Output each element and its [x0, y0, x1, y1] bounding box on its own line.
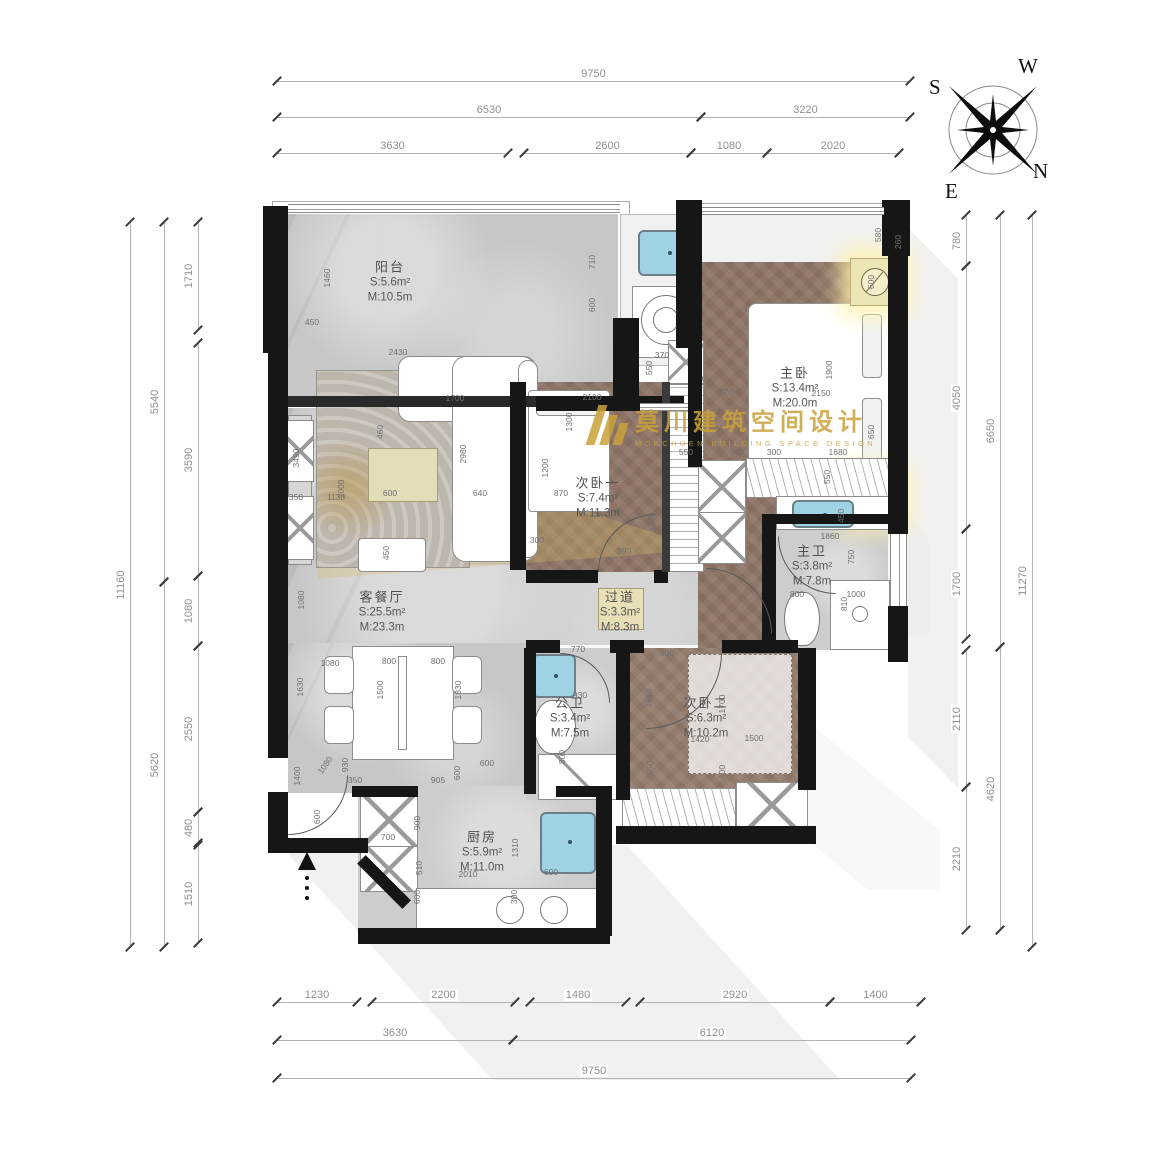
interior-dimension: 300	[767, 447, 781, 457]
interior-dimension: 905	[431, 775, 445, 785]
wall	[888, 252, 908, 534]
interior-dimension: 2430	[389, 347, 408, 357]
interior-dimension: 800	[790, 589, 804, 599]
balcony-window	[288, 204, 620, 213]
dimension-line	[277, 81, 910, 82]
interior-dimension: 900	[660, 648, 674, 658]
wall	[526, 570, 598, 583]
watermark-cn-text: 莫川建筑空间设计	[635, 402, 876, 437]
room-area-m: M:10.5m	[368, 290, 413, 304]
dimension-value: 6530	[475, 104, 503, 116]
dimension-line	[966, 266, 967, 529]
interior-dimension: 1860	[821, 531, 840, 541]
interior-dimension: 1400	[647, 513, 657, 532]
master-closet-box	[698, 512, 746, 564]
wall	[616, 826, 816, 844]
room-label-5: 客餐厅 S:25.5m² M:23.3m	[359, 590, 406, 635]
wall	[676, 200, 702, 348]
dimension-line	[1000, 647, 1001, 930]
room-name: 阳台	[368, 260, 413, 276]
interior-dimension: 1310	[510, 839, 520, 858]
wall	[762, 514, 892, 524]
interior-dimension: 400	[717, 765, 727, 779]
dimension-value: 1510	[183, 880, 195, 908]
studio-logo-icon	[592, 405, 625, 445]
building-shadow-right	[908, 228, 958, 788]
dimension-value: 5620	[149, 750, 161, 778]
interior-dimension: 580	[873, 228, 883, 242]
wall	[722, 640, 798, 653]
compass-label-w: W	[1018, 54, 1038, 78]
dimension-value: 2210	[951, 844, 963, 872]
wall	[268, 350, 288, 662]
interior-dimension: 600	[544, 867, 558, 877]
studio-watermark: 莫川建筑空间设计 MOKCHUEN BUILDING SPACE DESIGN	[592, 402, 876, 448]
arrow-head-icon	[298, 852, 316, 870]
interior-dimension: 930	[573, 690, 587, 700]
interior-dimension: 350	[289, 492, 303, 502]
room-area-m: M:7.5m	[550, 726, 590, 740]
room-label-9: 厨房 S:5.9m² M:11.0m	[460, 830, 504, 875]
dimension-value: 2920	[721, 989, 749, 1001]
dimension-line	[767, 153, 899, 154]
interior-dimension: 1500	[745, 733, 764, 743]
wall	[613, 318, 639, 410]
interior-dimension: 1660	[644, 689, 654, 708]
dimension-line	[701, 117, 910, 118]
watermark-en-text: MOKCHUEN BUILDING SPACE DESIGN	[635, 439, 876, 448]
dimension-line	[1032, 215, 1033, 947]
room-area-m: M:7.8m	[792, 574, 832, 588]
interior-dimension: 300	[509, 890, 519, 904]
master-closet-box	[698, 460, 746, 514]
wall	[358, 928, 610, 944]
interior-dimension: 460	[375, 425, 385, 439]
dimension-value: 6120	[698, 1027, 726, 1039]
interior-dimension: 1630	[295, 678, 305, 697]
bed2-wardrobe	[622, 788, 736, 828]
interior-dimension: 2150	[812, 388, 831, 398]
wall	[888, 606, 908, 662]
dimension-value: 480	[183, 816, 195, 838]
interior-dimension: 1680	[829, 447, 848, 457]
dimension-value: 3630	[378, 140, 406, 152]
dimension-value: 2600	[593, 140, 621, 152]
floor-plan-canvas: 阳台 S:5.6m² M:10.5m主卧 S:13.4m² M:20.0m次卧一…	[0, 0, 1150, 1154]
dimension-line	[277, 1002, 357, 1003]
interior-dimension: 1500	[375, 681, 385, 700]
wall	[263, 206, 288, 353]
dimension-value: 1710	[183, 262, 195, 290]
interior-dimension: 700	[381, 832, 395, 842]
interior-dimension: 1080	[296, 591, 306, 610]
interior-dimension: 1420	[691, 734, 710, 744]
dimension-value: 4050	[951, 383, 963, 411]
interior-dimension: 550	[644, 361, 654, 375]
interior-dimension: 260	[893, 235, 903, 249]
room-name: 客餐厅	[359, 590, 406, 606]
dimension-value: 1480	[564, 989, 592, 1001]
wall	[798, 648, 816, 790]
dimension-line	[966, 787, 967, 930]
room-name: 厨房	[460, 830, 504, 846]
room-area-m: M:8.3m	[600, 620, 640, 634]
interior-dimension: 450	[381, 546, 391, 560]
dimension-line	[277, 117, 701, 118]
interior-dimension: 600	[587, 298, 597, 312]
interior-dimension: 800	[431, 656, 445, 666]
dimension-value: 780	[951, 229, 963, 251]
room-area-s: S:6.3m²	[683, 712, 728, 726]
room-area-m: M:23.3m	[359, 620, 406, 634]
interior-dimension: 450	[305, 317, 319, 327]
dimension-value: 1080	[715, 140, 743, 152]
master-bath-window	[890, 534, 907, 606]
interior-dimension: 350	[348, 775, 362, 785]
room-area-m: M:11.3m	[575, 506, 620, 520]
dimension-line	[198, 576, 199, 646]
wall	[596, 786, 612, 936]
interior-dimension: 2980	[458, 445, 468, 464]
room-name: 次卧一	[575, 476, 620, 492]
shower-head-icon	[852, 606, 868, 622]
room-label-6: 过道 S:3.3m² M:8.3m	[600, 590, 640, 635]
interior-dimension: 3490	[291, 449, 301, 468]
interior-dimension: 710	[587, 255, 597, 269]
dimension-line	[277, 1078, 911, 1079]
room-label-1: 阳台 S:5.6m² M:10.5m	[368, 260, 413, 305]
wall-balcony-sill	[288, 396, 540, 407]
dimension-line	[966, 529, 967, 639]
interior-dimension: 1300	[564, 413, 574, 432]
interior-dimension: 1080	[321, 658, 340, 668]
interior-dimension: 550	[822, 470, 832, 484]
wall	[510, 382, 526, 570]
dimension-line	[277, 1040, 513, 1041]
dimension-line	[198, 646, 199, 812]
dimension-line	[513, 1040, 911, 1041]
interior-dimension: 1700	[446, 393, 465, 403]
interior-dimension: 1830	[453, 681, 463, 700]
interior-dimension: 1700	[717, 695, 727, 714]
interior-dimension: 1000	[847, 589, 866, 599]
room-name: 主卫	[792, 544, 832, 560]
room-area-s: S:3.4m²	[550, 712, 590, 726]
dimension-line	[372, 1002, 515, 1003]
interior-dimension: 370	[655, 350, 669, 360]
interior-dimension: 810	[839, 597, 849, 611]
dimension-value: 3590	[183, 445, 195, 473]
interior-dimension: 1900	[824, 361, 834, 380]
interior-dimension: 600	[866, 275, 876, 289]
room-name: 过道	[600, 590, 640, 606]
side-table	[358, 538, 426, 572]
interior-dimension: 600	[480, 758, 494, 768]
interior-dimension: 1460	[322, 269, 332, 288]
interior-dimension: 600	[383, 488, 397, 498]
stove-burner-icon	[540, 896, 568, 924]
interior-dimension: 300	[530, 535, 544, 545]
interior-dimension: 450	[836, 509, 846, 523]
dimension-line	[164, 222, 165, 582]
interior-dimension: 1200	[540, 459, 550, 478]
master-bed-pillow	[862, 314, 882, 378]
coffee-table	[368, 448, 438, 502]
room-label-4: 主卫 S:3.8m² M:7.8m	[792, 544, 832, 589]
interior-dimension: 890	[617, 546, 631, 556]
dimension-value: 1080	[183, 597, 195, 625]
room-area-s: S:3.3m²	[600, 606, 640, 620]
interior-dimension: 600	[412, 890, 422, 904]
dimension-value: 5540	[149, 388, 161, 416]
interior-dimension: 510	[414, 861, 424, 875]
dimension-line	[640, 1002, 830, 1003]
dimension-line	[1000, 215, 1001, 647]
wall	[524, 648, 536, 794]
interior-dimension: 550	[679, 447, 693, 457]
master-wardrobe	[746, 458, 890, 498]
dimension-value: 1230	[303, 989, 331, 1001]
room-area-s: S:5.6m²	[368, 276, 413, 290]
master-window	[702, 207, 884, 215]
dimension-value: 2020	[819, 140, 847, 152]
wall	[268, 838, 368, 853]
dimension-line	[277, 153, 508, 154]
interior-dimension: 640	[473, 488, 487, 498]
interior-dimension: 770	[719, 387, 733, 397]
dimension-value: 2200	[429, 989, 457, 1001]
dining-chair	[452, 706, 482, 744]
dining-table-runner	[398, 656, 407, 750]
dimension-value: 9750	[579, 68, 607, 80]
dimension-line	[198, 812, 199, 843]
room-area-s: S:5.9m²	[460, 846, 504, 860]
interior-dimension: 600	[312, 810, 322, 824]
wall	[616, 648, 630, 800]
interior-dimension: 930	[340, 758, 350, 772]
dimension-line	[830, 1002, 921, 1003]
interior-dimension: 800	[382, 656, 396, 666]
interior-dimension: 1400	[292, 767, 302, 786]
compass-label-s: S	[929, 75, 941, 99]
dining-chair	[324, 706, 354, 744]
dimension-line	[966, 215, 967, 266]
dimension-value: 1700	[951, 570, 963, 598]
dimension-value: 9750	[580, 1065, 608, 1077]
dimension-line	[164, 582, 165, 947]
dimension-value: 3220	[791, 104, 819, 116]
interior-dimension: 600	[452, 766, 462, 780]
interior-dimension: 940	[730, 447, 744, 457]
master-window-strip	[700, 214, 888, 264]
interior-dimension: 800	[557, 750, 567, 764]
room-label-3: 次卧一 S:7.4m² M:11.3m	[575, 476, 620, 521]
interior-dimension: 1000	[336, 480, 346, 499]
dimension-line	[524, 153, 691, 154]
room-area-s: S:7.4m²	[575, 492, 620, 506]
interior-dimension: 2100	[583, 392, 602, 402]
dimension-value: 11270	[1017, 564, 1029, 598]
wall	[268, 792, 288, 844]
compass-label-n: N	[1033, 159, 1048, 183]
room-area-s: S:25.5m²	[359, 606, 406, 620]
interior-dimension: 550	[645, 761, 655, 775]
wall	[352, 786, 418, 797]
compass-rose: W S E N	[915, 48, 1065, 208]
dimension-value: 6650	[985, 417, 997, 445]
interior-dimension: 750	[846, 550, 856, 564]
dimension-value: 3630	[381, 1027, 409, 1039]
master-toilet	[784, 592, 820, 646]
dimension-line	[530, 1002, 626, 1003]
dimension-value: 2110	[951, 705, 963, 733]
entry-direction-arrow	[298, 852, 316, 900]
wall	[268, 662, 288, 758]
dimension-line	[691, 153, 767, 154]
dimension-value: 11160	[115, 568, 127, 601]
dimension-line	[966, 650, 967, 787]
compass-label-e: E	[945, 179, 958, 203]
dimension-line	[198, 845, 199, 943]
dimension-line	[198, 343, 199, 576]
dimension-value: 4620	[985, 774, 997, 802]
interior-dimension: 2010	[459, 869, 478, 879]
interior-dimension: 900	[412, 816, 422, 830]
room-name: 主卧	[772, 366, 819, 382]
tv-wall-cabinet-lower	[286, 496, 314, 560]
dimension-value: 1400	[861, 989, 889, 1001]
kitchen-sink	[540, 812, 596, 874]
interior-dimension: 770	[571, 644, 585, 654]
dimension-line	[130, 222, 131, 947]
room-label-7: 公卫 S:3.4m² M:7.5m	[550, 696, 590, 741]
dimension-value: 2550	[183, 715, 195, 743]
dimension-line	[198, 222, 199, 330]
room-area-s: S:3.8m²	[792, 560, 832, 574]
interior-dimension: 870	[554, 488, 568, 498]
